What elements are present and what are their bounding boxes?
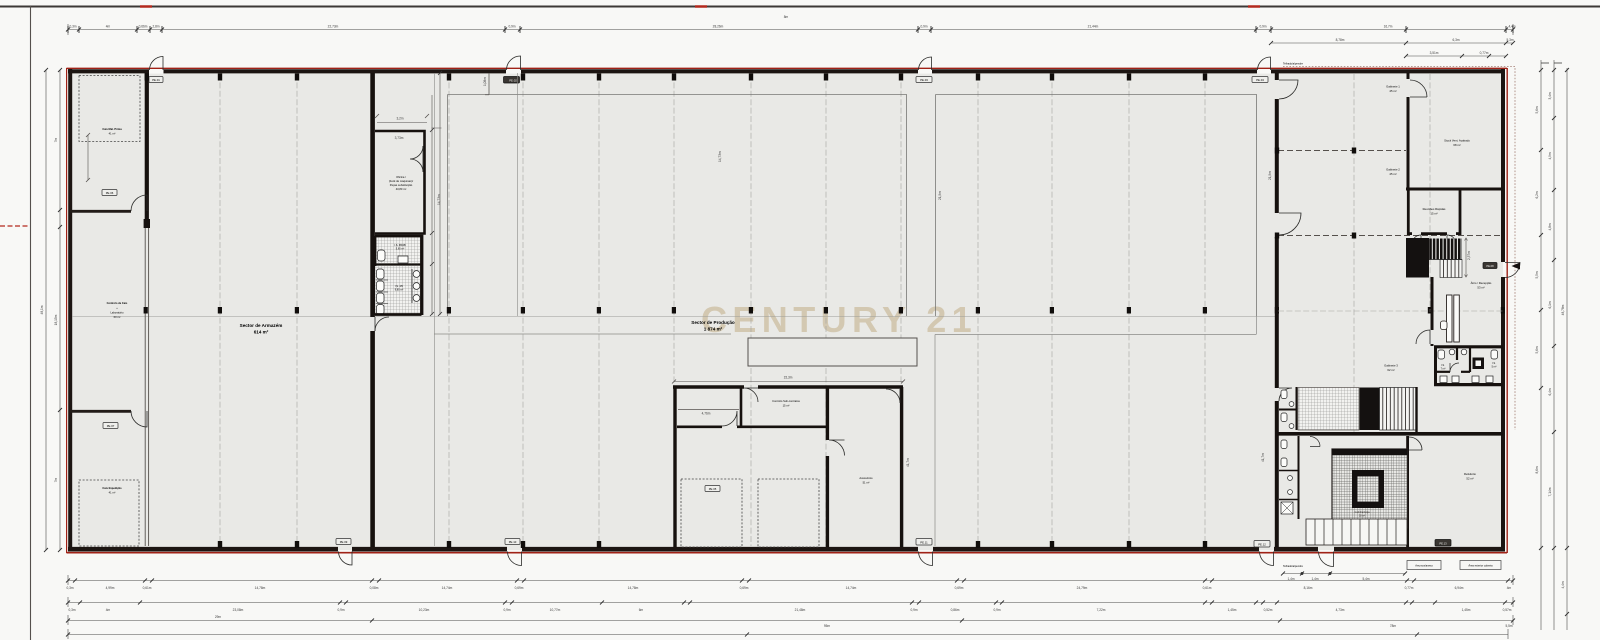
svg-text:614 m²: 614 m²	[254, 330, 269, 335]
svg-text:0,61m: 0,61m	[1203, 586, 1212, 590]
svg-text:Telhado/alpendre: Telhado/alpendre	[1283, 564, 1303, 568]
svg-text:PE.11: PE.11	[920, 540, 928, 544]
svg-text:Cais Mat. Prima: Cais Mat. Prima	[102, 127, 122, 131]
svg-text:53 m²: 53 m²	[1477, 286, 1484, 290]
svg-text:14,73m: 14,73m	[718, 151, 722, 162]
svg-text:5,6m: 5,6m	[1535, 106, 1539, 113]
svg-text:5,5m: 5,5m	[1505, 624, 1512, 628]
svg-text:78m: 78m	[1390, 624, 1397, 628]
svg-text:Stock Vent. Acabado: Stock Vent. Acabado	[1444, 139, 1470, 143]
svg-text:0,52m: 0,52m	[1264, 608, 1273, 612]
svg-text:0,57m: 0,57m	[1503, 608, 1512, 612]
svg-text:15,3m: 15,3m	[784, 376, 793, 380]
svg-text:0,61m: 0,61m	[143, 586, 152, 590]
svg-text:28,26m: 28,26m	[713, 25, 724, 29]
svg-text:45 m²: 45 m²	[1389, 89, 1396, 93]
svg-text:60 m²: 60 m²	[114, 315, 121, 319]
svg-text:0,9m: 0,9m	[508, 25, 515, 29]
svg-text:PE.08: PE.08	[1486, 264, 1494, 268]
svg-text:Cais Expedição: Cais Expedição	[102, 486, 122, 490]
svg-text:4,73m: 4,73m	[1336, 608, 1345, 612]
svg-text:6,3m: 6,3m	[1452, 38, 1459, 42]
svg-text:0,66m: 0,66m	[139, 25, 148, 29]
svg-text:0,86m: 0,86m	[951, 608, 960, 612]
svg-text:6,2m: 6,2m	[1535, 191, 1539, 198]
svg-text:PE.10: PE.10	[509, 540, 517, 544]
svg-text:Gabinete 2: Gabinete 2	[1386, 168, 1400, 172]
svg-text:Oficina /: Oficina /	[396, 175, 406, 179]
svg-text:1,4m: 1,4m	[1311, 577, 1318, 581]
svg-text:7,22m: 7,22m	[1097, 608, 1106, 612]
svg-text:Acessórios: Acessórios	[859, 476, 873, 480]
svg-text:7,14m: 7,14m	[1548, 487, 1552, 496]
svg-text:41,7m: 41,7m	[906, 458, 910, 467]
svg-text:PE.12: PE.12	[1258, 542, 1266, 546]
svg-text:Área exterior coberta: Área exterior coberta	[1468, 564, 1493, 568]
svg-text:6,4m: 6,4m	[1548, 388, 1552, 395]
svg-text:7 m²: 7 m²	[1441, 368, 1446, 371]
svg-text:1,4m: 1,4m	[1287, 577, 1294, 581]
svg-text:0,9m: 0,9m	[503, 608, 510, 612]
svg-text:48,1m: 48,1m	[40, 305, 44, 314]
svg-text:15 m²: 15 m²	[1430, 212, 1437, 216]
svg-text:Reuniões Rápidas: Reuniões Rápidas	[1423, 207, 1446, 211]
svg-text:8,16m: 8,16m	[1304, 586, 1313, 590]
svg-text:22,73m: 22,73m	[328, 25, 339, 29]
svg-text:62 m²: 62 m²	[1387, 368, 1394, 372]
svg-text:PE.03: PE.03	[920, 78, 928, 82]
svg-text:2,8m: 2,8m	[152, 25, 159, 29]
svg-text:0,9m: 0,9m	[1259, 25, 1266, 29]
svg-text:68 m²: 68 m²	[1453, 143, 1460, 147]
svg-text:10,23m: 10,23m	[419, 608, 430, 612]
svg-text:5,5m: 5,5m	[1535, 271, 1539, 278]
svg-text:6,1m: 6,1m	[1548, 301, 1552, 308]
svg-text:0,9m: 0,9m	[993, 608, 1000, 612]
svg-text:0,77m: 0,77m	[1480, 51, 1489, 55]
svg-text:48,78m: 48,78m	[1561, 304, 1565, 315]
svg-text:Átrio / Recepção: Átrio / Recepção	[1471, 281, 1492, 285]
svg-text:PE.09: PE.09	[340, 540, 348, 544]
svg-text:50 m²: 50 m²	[1359, 515, 1365, 518]
svg-text:5,60 m²: 5,60 m²	[396, 248, 405, 251]
svg-text:3,2m: 3,2m	[396, 117, 403, 121]
svg-text:14,78m: 14,78m	[255, 586, 266, 590]
svg-text:23,08m: 23,08m	[233, 608, 244, 612]
svg-text:14,74m: 14,74m	[442, 586, 453, 590]
svg-text:4,4m: 4,4m	[1508, 25, 1515, 29]
svg-text:4m: 4m	[106, 25, 111, 29]
svg-text:0,3m: 0,3m	[69, 25, 76, 29]
svg-text:21,48m: 21,48m	[795, 608, 806, 612]
svg-text:2,37m: 2,37m	[1467, 251, 1471, 260]
svg-text:41 m²: 41 m²	[109, 491, 116, 495]
svg-text:4,9m: 4,9m	[1548, 152, 1552, 159]
svg-text:5,6m: 5,6m	[1535, 346, 1539, 353]
svg-text:PE.04: PE.04	[1256, 78, 1264, 82]
svg-text:5 m²: 5 m²	[1492, 366, 1497, 369]
svg-text:51 m²: 51 m²	[863, 481, 870, 485]
svg-text:PE.01: PE.01	[152, 78, 160, 82]
svg-text:4,8m: 4,8m	[1548, 223, 1552, 230]
svg-text:10,77m: 10,77m	[550, 608, 561, 612]
svg-text:1,45m: 1,45m	[1228, 608, 1237, 612]
svg-text:4,99m: 4,99m	[106, 586, 115, 590]
svg-text:15 m²: 15 m²	[783, 404, 790, 408]
svg-text:1 874 m²: 1 874 m²	[704, 327, 723, 332]
svg-text:95m: 95m	[824, 624, 831, 628]
svg-text:41,7m: 41,7m	[1261, 453, 1265, 462]
svg-text:6m: 6m	[639, 608, 644, 612]
svg-text:0,77m: 0,77m	[1405, 586, 1414, 590]
svg-text:41 m²: 41 m²	[109, 132, 116, 136]
svg-text:45 m²: 45 m²	[1389, 172, 1396, 176]
svg-text:Controlo de Cais: Controlo de Cais	[107, 301, 128, 305]
svg-text:Telhado/alpendre: Telhado/alpendre	[1283, 62, 1303, 66]
svg-text:0,3m: 0,3m	[66, 586, 73, 590]
svg-text:Sector de Produção: Sector de Produção	[691, 320, 735, 325]
svg-text:5,4m: 5,4m	[1362, 577, 1369, 581]
svg-text:8m: 8m	[784, 15, 789, 19]
svg-text:4,4m: 4,4m	[1561, 581, 1565, 588]
svg-text:5,3m: 5,3m	[1506, 38, 1513, 42]
svg-text:0,3m: 0,3m	[68, 608, 75, 612]
svg-text:PE.06: PE.06	[106, 191, 114, 195]
svg-text:8,78m: 8,78m	[1336, 38, 1345, 42]
svg-text:7m: 7m	[54, 137, 58, 142]
svg-text:(bock de máquinas)/: (bock de máquinas)/	[389, 179, 414, 183]
svg-text:Refeitório: Refeitório	[1464, 472, 1476, 476]
svg-text:3,73m: 3,73m	[395, 136, 404, 140]
svg-text:16,7m: 16,7m	[1384, 25, 1393, 29]
svg-text:Gabinete 1: Gabinete 1	[1386, 85, 1400, 89]
svg-text:21,9m: 21,9m	[1268, 171, 1272, 180]
svg-text:0,69m: 0,69m	[955, 586, 964, 590]
svg-text:PE.07: PE.07	[107, 424, 115, 428]
svg-text:3,51m: 3,51m	[1430, 51, 1439, 55]
svg-text:21,44m: 21,44m	[1088, 25, 1099, 29]
svg-text:Arrumos/anexo: Arrumos/anexo	[1415, 564, 1433, 568]
svg-text:14,78m: 14,78m	[628, 586, 639, 590]
svg-text:1,45m: 1,45m	[1462, 608, 1471, 612]
svg-text:0,9m: 0,9m	[337, 608, 344, 612]
svg-text:3,4m: 3,4m	[1548, 92, 1552, 99]
svg-text:0,69m: 0,69m	[515, 586, 524, 590]
svg-text:PE.02: PE.02	[509, 78, 517, 82]
svg-text:29m: 29m	[215, 615, 222, 619]
svg-text:9,80 m²: 9,80 m²	[395, 289, 404, 292]
svg-text:1,08m: 1,08m	[483, 77, 487, 86]
svg-text:PE.05: PE.05	[709, 487, 717, 491]
svg-text:4m: 4m	[1507, 586, 1512, 590]
svg-text:0,08m: 0,08m	[370, 586, 379, 590]
svg-text:0,69m: 0,69m	[740, 586, 749, 590]
svg-text:7m: 7m	[54, 477, 58, 482]
svg-text:52 m²: 52 m²	[1466, 477, 1473, 481]
svg-text:21,9m: 21,9m	[938, 191, 942, 200]
svg-text:Sector de Armazém: Sector de Armazém	[240, 323, 283, 328]
svg-text:8,6m: 8,6m	[1535, 466, 1539, 473]
svg-text:43,80 m²: 43,80 m²	[396, 187, 407, 191]
svg-text:0,9m: 0,9m	[910, 608, 917, 612]
svg-text:18,15m: 18,15m	[54, 314, 58, 325]
svg-text:4m: 4m	[106, 608, 111, 612]
svg-text:14,73m: 14,73m	[437, 194, 441, 205]
svg-text:24,79m: 24,79m	[1077, 586, 1088, 590]
svg-text:PE.13: PE.13	[1439, 541, 1447, 545]
svg-text:Gabinete 3: Gabinete 3	[1384, 364, 1398, 368]
svg-text:6,94m: 6,94m	[1455, 586, 1464, 590]
svg-text:4,76m: 4,76m	[702, 412, 711, 416]
svg-text:14,74m: 14,74m	[846, 586, 857, 590]
svg-text:Peças substituição: Peças substituição	[390, 183, 413, 187]
svg-text:Controlo Sub-contratos: Controlo Sub-contratos	[772, 399, 800, 403]
svg-text:0,9m: 0,9m	[920, 25, 927, 29]
svg-text:Laboratório: Laboratório	[110, 311, 124, 315]
